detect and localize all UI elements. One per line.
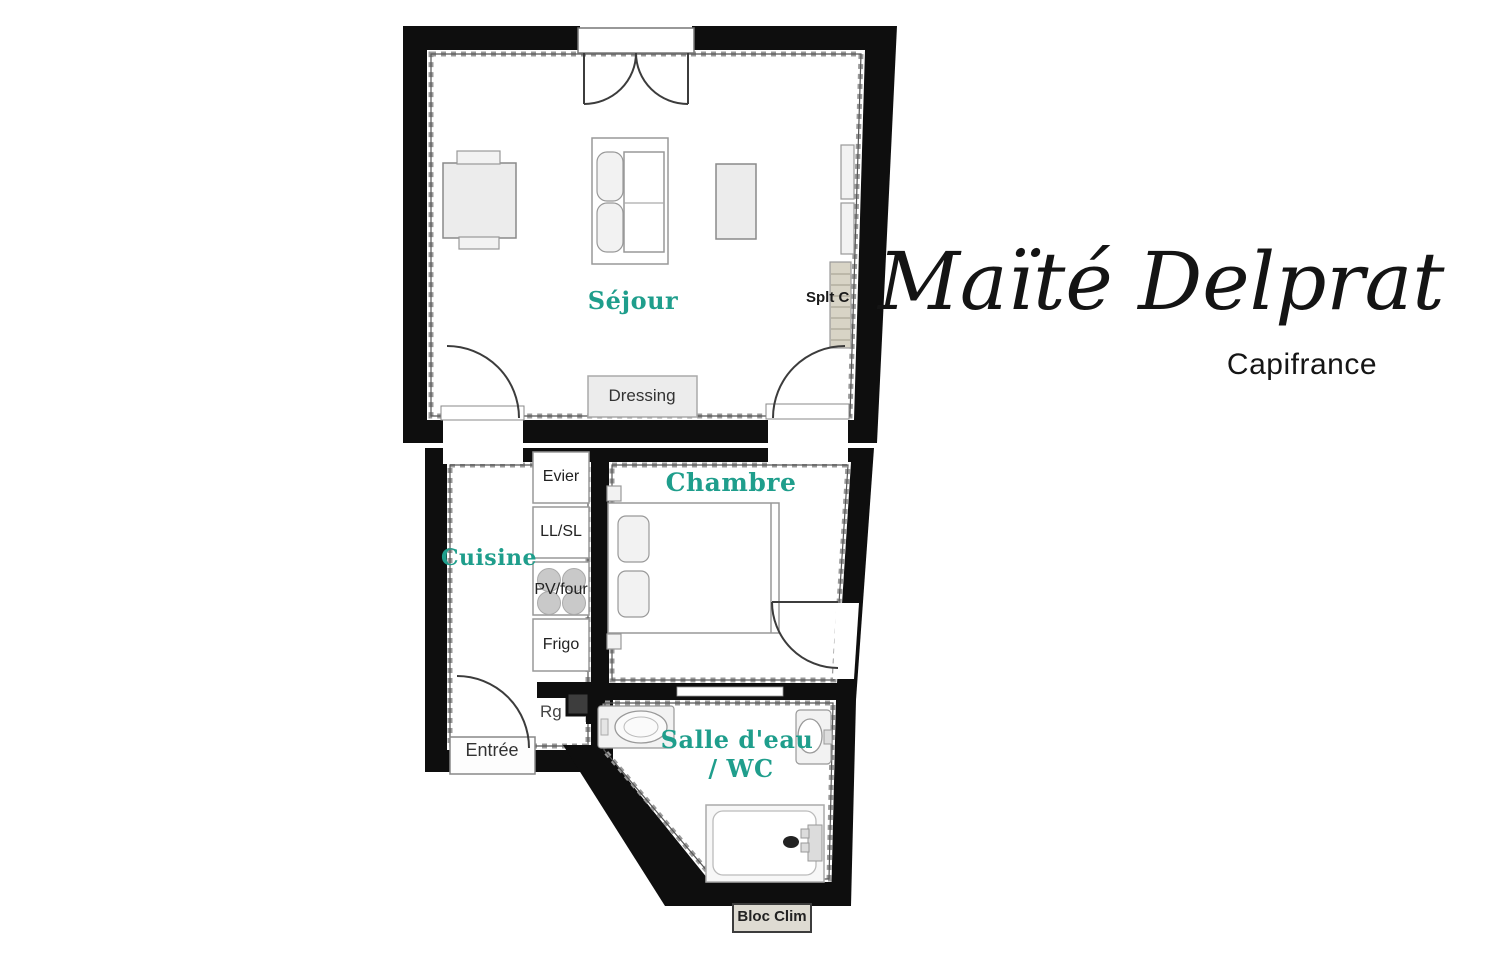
- plaque-four-label: PV/four: [534, 581, 587, 599]
- frigo-label: Frigo: [543, 636, 579, 654]
- shower-tray: [706, 805, 824, 882]
- entree-label: Entrée: [465, 740, 518, 761]
- evier-label: Evier: [543, 468, 579, 486]
- sejour-room-label: Séjour: [588, 286, 678, 315]
- bloc-clim-label: Bloc Clim: [737, 908, 806, 925]
- rangement-label: Rg: [540, 702, 562, 722]
- cuisine-room-label: Cuisine: [441, 545, 537, 571]
- chambre-room-label: Chambre: [666, 468, 797, 497]
- sofa: [592, 138, 668, 264]
- floorplan-canvas: Séjour Cuisine Chambre Salle d'eau / WC …: [0, 0, 1500, 956]
- dining-table: [443, 151, 516, 249]
- split-clim-label: Splt C: [806, 289, 849, 306]
- side-table: [716, 164, 756, 239]
- agent-signature: Maïté Delprat: [878, 232, 1444, 332]
- wall-console: [841, 145, 854, 254]
- agency-name: Capifrance: [1075, 348, 1377, 382]
- bed: [607, 486, 779, 649]
- dressing-label: Dressing: [608, 386, 675, 406]
- lave-linge-label: LL/SL: [540, 523, 582, 541]
- salle-eau-room-label: Salle d'eau: [661, 725, 814, 754]
- wc-room-label: / WC: [708, 754, 773, 783]
